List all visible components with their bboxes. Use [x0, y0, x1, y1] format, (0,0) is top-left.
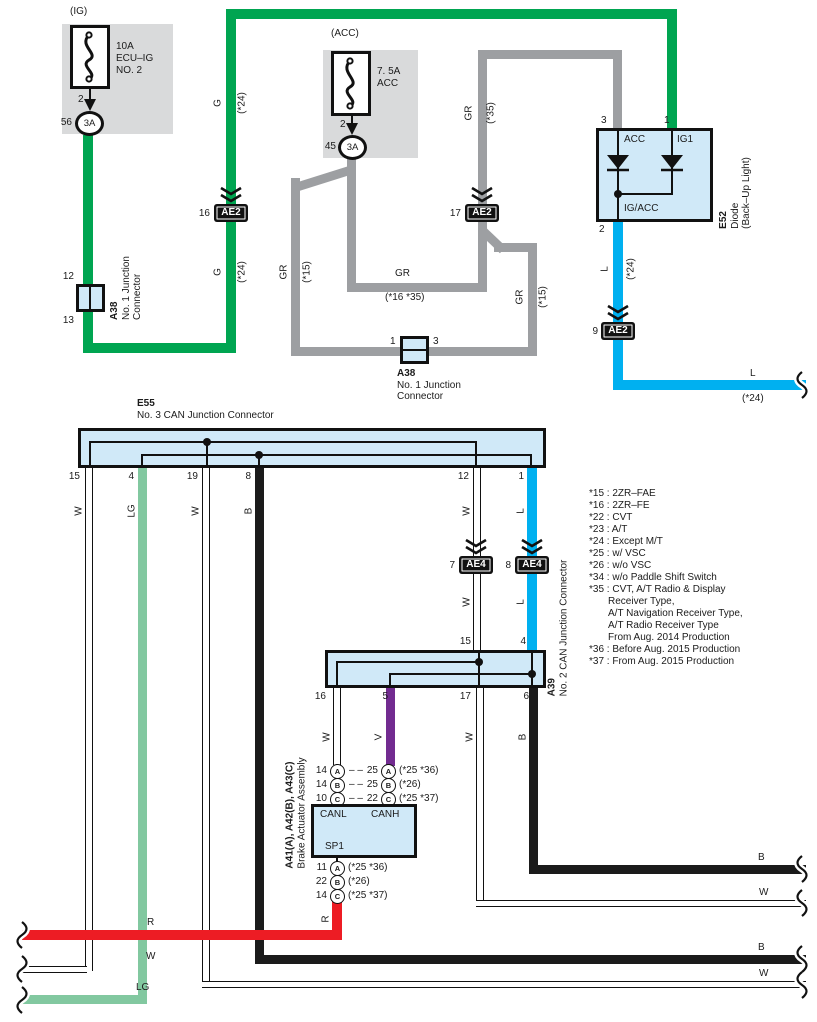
a38-left-label: A38 No. 1 Junction Connector	[109, 256, 144, 320]
a39-bus-b-dot	[528, 670, 536, 678]
a39-pin-16: 16	[308, 691, 326, 703]
a39-box	[325, 650, 546, 688]
ig-arrow-icon	[82, 88, 98, 112]
e55-bus-a	[90, 441, 476, 443]
wire-gr-horiz-top	[478, 50, 622, 59]
e55-pin-19: 19	[180, 471, 198, 483]
brake-row-a-left-circle: A	[330, 764, 345, 779]
note-line: *16 : 2ZR–FE	[589, 500, 650, 512]
label-l-horiz-note: (*24)	[742, 393, 764, 405]
brake-bot-a-circle: A	[330, 861, 345, 876]
brake-row-b-left-no: 14	[305, 779, 327, 791]
label-g-top-note: (*24)	[237, 92, 248, 114]
note-line-cont: From Aug. 2014 Production	[608, 632, 730, 644]
a38-left-id: A38	[109, 256, 121, 320]
acc-conn-oval: 3A	[338, 135, 367, 160]
e52-label: E52 Diode (Back–Up Light)	[718, 157, 753, 229]
a39-bus-b	[390, 673, 533, 675]
label-l-horiz: L	[750, 368, 756, 380]
note-line: *23 : A/T	[589, 524, 627, 536]
brake-bot-b-circle: B	[330, 875, 345, 890]
e55-bus-b	[142, 454, 532, 456]
label-right-w1: W	[759, 887, 768, 899]
e52-line-join	[617, 193, 673, 195]
label-g-mid: G	[213, 268, 224, 276]
note-line-cont: A/T Radio Receiver Type	[608, 620, 719, 632]
e55-pin-4: 4	[116, 471, 134, 483]
chevron-down-icon	[219, 187, 243, 203]
label-right-w2: W	[759, 968, 768, 980]
pin-letter: C	[335, 795, 340, 804]
pin-letter: B	[386, 781, 391, 790]
ae2-9-no: 9	[580, 326, 598, 338]
ae4-8-tag: AE4	[515, 556, 549, 574]
e52-pin-acc: 3	[601, 115, 607, 127]
brake-row-a-right-no: 25	[356, 765, 378, 777]
label-right-b1: B	[758, 852, 765, 864]
e55-id: E55	[137, 398, 155, 410]
wire-g-vert-mid	[226, 9, 236, 353]
label-gr-left: GR	[279, 265, 290, 280]
label-gr-acc-note: (*35)	[486, 102, 497, 124]
a39-bus-a-drop1	[336, 661, 338, 686]
e52-name2: (Back–Up Light)	[741, 157, 753, 229]
brake-bot-b-note: (*26)	[348, 876, 370, 888]
e55-pin-15: 15	[62, 471, 80, 483]
ae4-8-no: 8	[493, 560, 511, 572]
chevron-down-icon	[520, 539, 544, 555]
wire-b-pin8	[255, 468, 264, 963]
wire-g-vert-diode	[667, 9, 677, 128]
diode-icon	[605, 153, 631, 175]
a38-mid-name2: Connector	[397, 391, 443, 403]
wire-gr-vert-left	[291, 178, 300, 356]
e55-name: No. 3 CAN Junction Connector	[137, 410, 274, 422]
label-r-vert: R	[321, 915, 332, 922]
brake-name: Brake Actuator Assembly	[296, 757, 308, 868]
a38-left-name1: No. 1 Junction	[120, 256, 132, 320]
ae2-17-no: 17	[443, 208, 461, 220]
brake-label: A41(A), A42(B), A43(C) Brake Actuator As…	[285, 757, 308, 868]
label-right-b2: B	[758, 942, 765, 954]
e55-bus-a-dot	[203, 438, 211, 446]
label-a39-w16: W	[322, 732, 333, 741]
label-gr-left-note: (*15)	[302, 261, 313, 283]
acc-fuse-name: ACC	[377, 78, 398, 90]
ae2-16-label: AE2	[221, 207, 240, 218]
label-bottom-lg: LG	[136, 982, 149, 994]
wire-break-icon	[792, 971, 810, 999]
label-a39-v5: V	[374, 734, 385, 741]
wire-break-icon	[14, 955, 32, 983]
a39-bus-a-dot	[475, 658, 483, 666]
ae2-9-label: AE2	[608, 325, 627, 336]
ae2-9-tag: AE2	[601, 322, 635, 340]
ig-conn-oval: 3A	[75, 111, 104, 136]
a38-left-name2: Connector	[132, 256, 144, 320]
e55-bus-b-drop1	[141, 454, 143, 466]
label-gr-right: GR	[515, 290, 526, 305]
note-line: *26 : w/o VSC	[589, 560, 651, 572]
wiring-diagram: (IG) 10A ECU–IG NO. 2 2 56 3A (ACC) 7. 5…	[0, 0, 817, 1022]
label-e55-w12: W	[462, 506, 473, 515]
a39-id: A39	[547, 560, 559, 697]
brake-bot-b-no: 22	[305, 876, 327, 888]
ae4-7-no: 7	[437, 560, 455, 572]
brake-canl: CANL	[320, 809, 347, 821]
e52-in-ig1: IG1	[677, 134, 693, 146]
label-e55-l1: L	[516, 508, 527, 514]
wire-w-pin17	[476, 688, 484, 903]
diode-icon	[659, 153, 685, 175]
wire-g-horiz-bottom	[83, 343, 236, 353]
wire-break-icon	[792, 889, 810, 917]
a39-pin-15: 15	[453, 636, 471, 648]
pin-letter: A	[335, 767, 340, 776]
brake-row-a-right-circle: A	[381, 764, 396, 779]
wire-break-icon	[792, 855, 810, 883]
wire-b-pin8-horiz	[255, 955, 806, 964]
fuse-element-icon	[73, 28, 106, 85]
chevron-down-icon	[464, 539, 488, 555]
pin-letter: C	[386, 795, 391, 804]
brake-bot-c-note: (*25 *37)	[348, 890, 387, 902]
label-g-mid-note: (*24)	[237, 261, 248, 283]
wire-lg-vert	[138, 468, 147, 1004]
ig-fuse-name1: ECU–IG	[116, 53, 153, 65]
wire-break-icon	[14, 986, 32, 1014]
label-l-vert-note: (*24)	[626, 258, 637, 280]
brake-bot-a-note: (*25 *36)	[348, 862, 387, 874]
note-line: *36 : Before Aug. 2015 Production	[589, 644, 740, 656]
note-line: *34 : w/o Paddle Shift Switch	[589, 572, 717, 584]
e55-pin-8: 8	[233, 471, 251, 483]
label-e55-w19: W	[191, 506, 202, 515]
e52-out: IG/ACC	[624, 203, 658, 215]
wire-b-pin6	[529, 688, 538, 873]
ig-conn-label: 3A	[84, 118, 96, 129]
a39-name: No. 2 CAN Junction Connector	[558, 560, 570, 697]
a38-mid-id: A38	[397, 368, 415, 380]
note-line: *22 : CVT	[589, 512, 632, 524]
brake-canh: CANH	[371, 809, 399, 821]
a38-mid-pin-l: 1	[390, 336, 396, 348]
label-gr-acc: GR	[464, 106, 475, 121]
ig-conn-no: 56	[56, 117, 72, 129]
ig-fuse-symbol	[70, 25, 110, 89]
label-gr-mid-note: (*16 *35)	[385, 292, 424, 304]
brake-row-a-left-no: 14	[305, 765, 327, 777]
a38-left-divider	[89, 287, 91, 309]
wire-break-icon	[14, 921, 32, 949]
pin-letter: B	[335, 878, 340, 887]
note-line: *37 : From Aug. 2015 Production	[589, 656, 734, 668]
wire-w-pin15	[85, 468, 93, 971]
ig-fuse-tag: (IG)	[70, 6, 87, 18]
note-line-cont: A/T Navigation Receiver Type,	[608, 608, 743, 620]
ae4-7-tag: AE4	[459, 556, 493, 574]
ae4-8-label: AE4	[522, 559, 541, 570]
brake-bot-c-circle: C	[330, 889, 345, 904]
acc-conn-label: 3A	[347, 142, 359, 153]
a38-mid-name1: No. 1 Junction	[397, 380, 461, 392]
label-l-vert: L	[600, 266, 611, 272]
wire-b-pin6-horiz	[529, 865, 806, 874]
ae4-7-label: AE4	[466, 559, 485, 570]
wire-g-horiz-top	[226, 9, 677, 19]
acc-fuse-rating: 7. 5A	[377, 66, 400, 78]
label-ae4-w: W	[462, 597, 473, 606]
a38-left-pin-bot: 13	[56, 315, 74, 327]
e55-bus-a-drop1	[89, 441, 91, 466]
acc-arrow-icon	[344, 114, 360, 136]
chevron-down-icon	[606, 305, 630, 321]
note-line: *15 : 2ZR–FAE	[589, 488, 656, 500]
label-g-top: G	[213, 99, 224, 107]
note-line: *24 : Except M/T	[589, 536, 663, 548]
ae2-16-no: 16	[192, 208, 210, 220]
note-line-cont: Receiver Type,	[608, 596, 675, 608]
a38-left-box	[76, 284, 105, 312]
a39-pin-17: 17	[453, 691, 471, 703]
ae2-17-label: AE2	[472, 207, 491, 218]
e55-pin-12: 12	[451, 471, 469, 483]
e52-junction-dot	[614, 190, 622, 198]
brake-row-b-right-no: 25	[356, 779, 378, 791]
pin-letter: A	[386, 767, 391, 776]
a39-pin-6: 6	[511, 691, 529, 703]
brake-row-c-left-no: 10	[305, 793, 327, 805]
wire-w-pin19-horiz	[202, 981, 806, 988]
e52-pin-out: 2	[599, 224, 605, 236]
pin-letter: B	[335, 781, 340, 790]
label-e55-w15: W	[74, 506, 85, 515]
wire-break-icon	[792, 371, 810, 399]
wire-gr-vert-pin3	[613, 50, 622, 128]
brake-row-a-note: (*25 *36)	[399, 765, 438, 777]
brake-id: A41(A), A42(B), A43(C)	[285, 757, 297, 868]
e52-line-acc	[617, 131, 619, 219]
wire-gr-vert-right	[528, 243, 537, 356]
wire-r-horiz	[22, 930, 342, 940]
label-e55-lg4: LG	[127, 504, 138, 517]
label-a39-w17: W	[465, 732, 476, 741]
a38-mid-pin-r: 3	[433, 336, 439, 348]
wire-w-pin19	[202, 468, 210, 986]
e52-name: Diode	[729, 157, 741, 229]
pin-letter: A	[335, 864, 340, 873]
acc-fuse-tag: (ACC)	[331, 28, 359, 40]
label-ae4-l: L	[516, 599, 527, 605]
chevron-down-icon	[470, 187, 494, 203]
wire-gr-vert-mid	[347, 158, 356, 292]
label-a39-b6: B	[518, 734, 529, 741]
brake-row-b-note: (*26)	[399, 779, 421, 791]
note-line: *35 : CVT, A/T Radio & Display	[589, 584, 726, 596]
wire-l-horiz	[613, 380, 806, 390]
ig-fuse-rating: 10A	[116, 41, 134, 53]
wire-gr-vert-above-ae2	[478, 57, 487, 204]
brake-row-b-right-circle: B	[381, 778, 396, 793]
a39-bus-a	[337, 661, 481, 663]
brake-bot-c-no: 14	[305, 890, 327, 902]
a39-pin-5: 5	[370, 691, 388, 703]
brake-bot-a-no: 11	[305, 862, 327, 874]
note-line: *25 : w/ VSC	[589, 548, 646, 560]
brake-row-c-note: (*25 *37)	[399, 793, 438, 805]
acc-conn-no: 45	[320, 141, 336, 153]
e55-bus-b-drop3	[530, 454, 532, 466]
wire-w-pin16	[333, 688, 341, 765]
wire-break-icon	[792, 945, 810, 973]
ig-fuse-name2: NO. 2	[116, 65, 142, 77]
label-gr-mid: GR	[395, 268, 410, 280]
a38-mid-divider	[403, 349, 426, 351]
e52-in-acc: ACC	[624, 134, 645, 146]
a39-pin-4: 4	[508, 636, 526, 648]
wire-gr-horiz-mid	[347, 283, 487, 292]
brake-row-b-left-circle: B	[330, 778, 345, 793]
label-e55-b8: B	[244, 508, 255, 515]
ae2-17-tag: AE2	[465, 204, 499, 222]
e52-id: E52	[718, 157, 730, 229]
label-bottom-r: R	[147, 917, 154, 929]
e55-bus-b-dot	[255, 451, 263, 459]
fuse-element-icon	[334, 54, 367, 112]
label-bottom-w: W	[146, 951, 155, 963]
wire-l-pin1-lower	[527, 572, 537, 652]
ae2-16-tag: AE2	[214, 204, 248, 222]
a39-bus-b-drop1	[389, 673, 391, 686]
pin-letter: C	[335, 892, 340, 901]
e52-pin-ig1: 1	[664, 115, 670, 127]
wire-g-vert-left	[83, 135, 93, 352]
wire-lg-horiz	[22, 995, 147, 1004]
acc-fuse-symbol	[331, 51, 371, 116]
e55-pin-1: 1	[506, 471, 524, 483]
wire-gr-vert-below-ae2	[478, 222, 487, 292]
brake-sp1: SP1	[325, 841, 344, 853]
a38-left-pin-top: 12	[56, 271, 74, 283]
wire-w-pin17-horiz	[476, 900, 806, 907]
a39-label: A39 No. 2 CAN Junction Connector	[547, 560, 570, 697]
brake-row-c-right-no: 22	[356, 793, 378, 805]
label-gr-right-note: (*15)	[538, 286, 549, 308]
wire-w-pin12-lower	[473, 572, 481, 652]
